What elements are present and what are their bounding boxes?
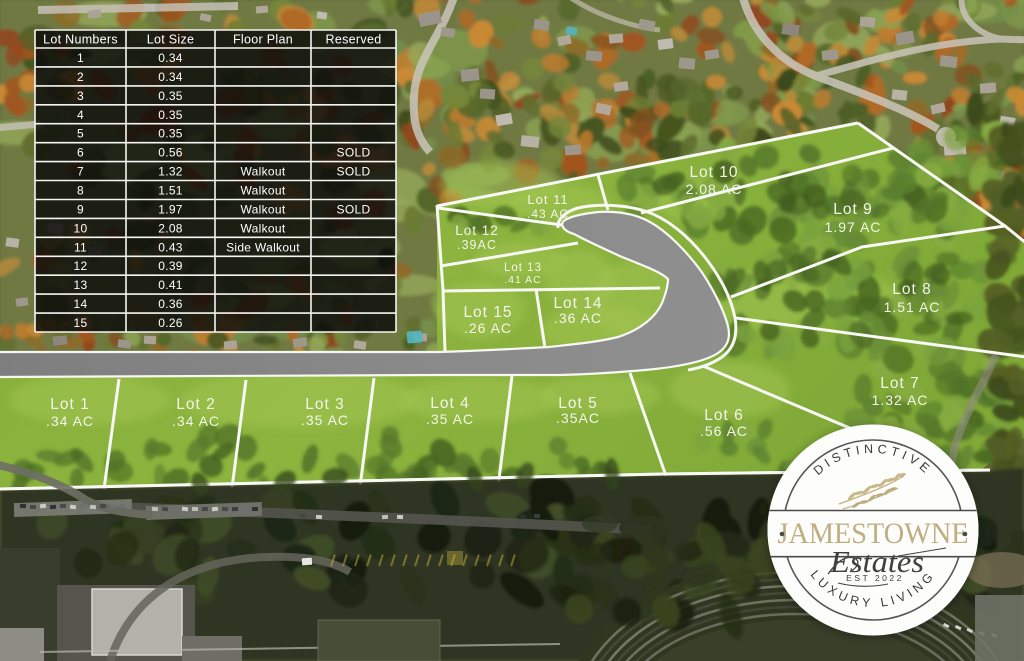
svg-text:7: 7 [77,165,84,179]
svg-text:0.43: 0.43 [158,240,183,254]
svg-text:Lot 8: Lot 8 [892,281,931,298]
svg-text:11: 11 [74,240,87,254]
svg-text:Lot 6: Lot 6 [704,407,743,424]
svg-text:.41 AC: .41 AC [504,274,542,286]
svg-text:Lot 12: Lot 12 [455,223,499,238]
svg-text:Walkout: Walkout [240,184,285,198]
svg-text:8: 8 [77,184,84,198]
svg-text:Reserved: Reserved [326,33,382,47]
svg-text:4: 4 [77,108,84,122]
svg-text:0.35: 0.35 [158,108,183,122]
svg-text:0.26: 0.26 [158,316,183,330]
svg-text:5: 5 [77,127,84,141]
svg-text:14: 14 [74,297,88,311]
svg-text:Lot 7: Lot 7 [880,375,919,392]
svg-text:.35AC: .35AC [556,410,600,426]
svg-text:Floor Plan: Floor Plan [233,33,293,47]
svg-text:2.08: 2.08 [158,221,183,235]
svg-text:0.41: 0.41 [158,278,183,292]
svg-text:10: 10 [74,221,88,235]
svg-text:.34 AC: .34 AC [172,413,220,429]
svg-text:1.51 AC: 1.51 AC [884,299,941,315]
svg-text:Walkout: Walkout [240,202,285,216]
svg-text:Lot 11: Lot 11 [527,192,568,207]
svg-text:Lot 15: Lot 15 [463,304,512,321]
svg-text:.43 AC: .43 AC [527,207,569,221]
svg-text:.35 AC: .35 AC [426,411,474,427]
svg-text:0.35: 0.35 [158,89,183,103]
svg-text:Walkout: Walkout [240,221,285,235]
svg-text:13: 13 [74,278,88,292]
svg-text:1.32 AC: 1.32 AC [872,392,929,408]
svg-text:Side Walkout: Side Walkout [226,240,300,254]
svg-text:.56 AC: .56 AC [700,423,748,439]
svg-text:Lot 9: Lot 9 [833,201,872,218]
svg-text:1.97 AC: 1.97 AC [825,219,882,235]
svg-text:1.32: 1.32 [158,165,183,179]
svg-text:SOLD: SOLD [337,146,371,160]
svg-text:2: 2 [77,70,84,84]
svg-text:Lot 13: Lot 13 [504,262,542,274]
svg-text:0.35: 0.35 [158,127,183,141]
svg-text:.35 AC: .35 AC [301,412,349,428]
svg-text:Lot Numbers: Lot Numbers [43,33,118,47]
svg-text:.39AC: .39AC [457,238,497,252]
svg-text:0.39: 0.39 [158,259,183,273]
svg-text:Lot 2: Lot 2 [176,396,215,413]
svg-text:SOLD: SOLD [337,202,371,216]
svg-text:Lot 10: Lot 10 [689,164,738,181]
svg-text:1.51: 1.51 [158,184,183,198]
svg-text:0.34: 0.34 [158,51,183,65]
svg-text:15: 15 [74,316,88,330]
svg-text:3: 3 [77,89,84,103]
svg-text:9: 9 [77,202,84,216]
svg-text:2.08 AC: 2.08 AC [686,181,743,197]
svg-text:.26 AC: .26 AC [464,320,512,336]
svg-text:Lot 1: Lot 1 [50,396,89,413]
svg-text:Lot 3: Lot 3 [305,396,344,413]
svg-text:12: 12 [74,259,88,273]
svg-text:0.36: 0.36 [158,297,183,311]
svg-text:Lot 4: Lot 4 [430,395,469,412]
svg-text:Walkout: Walkout [240,165,285,179]
svg-text:1: 1 [77,51,84,65]
svg-text:Lot Size: Lot Size [147,33,195,47]
svg-text:SOLD: SOLD [337,165,371,179]
svg-text:EST 2022: EST 2022 [846,573,904,583]
svg-text:.34 AC: .34 AC [46,413,94,429]
svg-text:0.56: 0.56 [158,146,183,160]
svg-text:0.34: 0.34 [158,70,183,84]
svg-text:.36 AC: .36 AC [554,310,602,326]
svg-text:1.97: 1.97 [158,202,183,216]
svg-text:6: 6 [77,146,84,160]
